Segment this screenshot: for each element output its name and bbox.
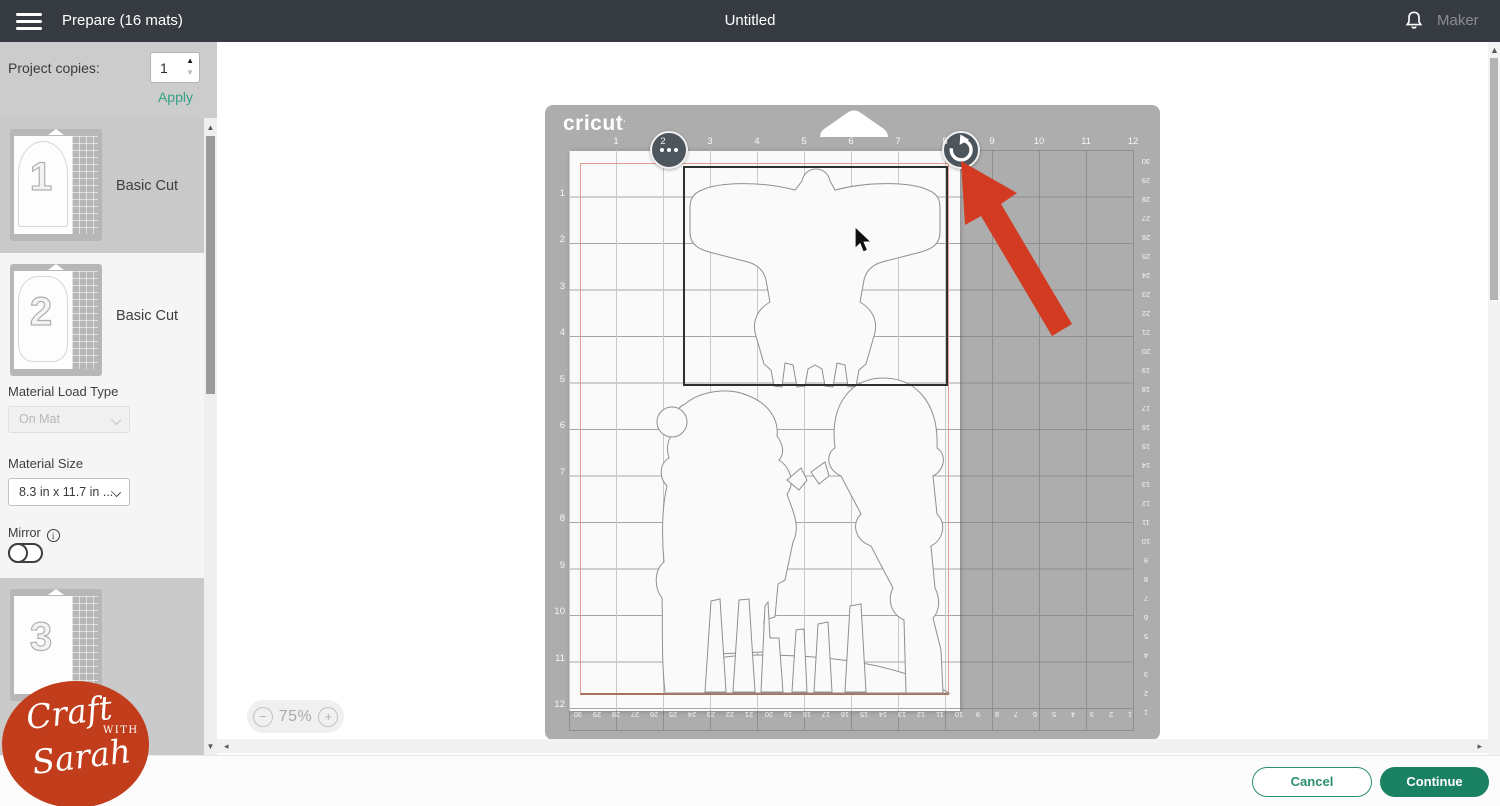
ruler-number: 25: [666, 710, 680, 719]
mat-tab-icon: [48, 129, 64, 135]
material-size-select[interactable]: 8.3 in x 11.7 in ...: [8, 478, 130, 506]
mat-cut-type: Basic Cut: [116, 308, 178, 324]
ruler-number: 16: [838, 710, 852, 719]
ruler-number: 15: [1139, 442, 1153, 451]
ruler-number: 8: [547, 513, 565, 524]
scrollbar-thumb[interactable]: [206, 136, 215, 394]
ruler-number: 10: [1034, 136, 1045, 147]
ruler-number: 26: [1139, 233, 1153, 242]
ruler-number: 11: [933, 710, 947, 719]
scrollbar-thumb[interactable]: [1490, 58, 1498, 300]
page-title: Prepare (16 mats): [62, 0, 183, 42]
sidebar: Project copies: 1 ▲ ▼ Apply 1 Basic Cut: [0, 42, 217, 755]
mat-top-tab: [820, 110, 888, 137]
ruler-number: 4: [754, 136, 759, 147]
zoom-out-icon[interactable]: −: [253, 707, 273, 727]
ruler-number: 11: [1081, 136, 1091, 147]
ruler-number: 20: [762, 710, 776, 719]
continue-button[interactable]: Continue: [1380, 767, 1489, 797]
zoom-level: 75%: [279, 708, 313, 726]
ruler-number: 21: [1139, 328, 1153, 337]
ruler-number: 17: [819, 710, 833, 719]
ruler-number: 12: [1139, 499, 1153, 508]
scroll-up-icon[interactable]: ▲: [1490, 45, 1499, 55]
ruler-number: 6: [848, 136, 853, 147]
ruler-number: 13: [1139, 480, 1153, 489]
ruler-number: 18: [800, 710, 814, 719]
ruler-number: 12: [547, 699, 565, 710]
ruler-number: 10: [1139, 537, 1153, 546]
ruler-number: 23: [704, 710, 718, 719]
ruler-number: 4: [1139, 651, 1153, 660]
ruler-number: 17: [1139, 404, 1153, 413]
ruler-number: 8: [990, 710, 1004, 719]
copies-value[interactable]: 1: [160, 60, 168, 76]
copies-decrement-icon[interactable]: ▼: [186, 68, 194, 77]
menu-icon[interactable]: [16, 13, 42, 30]
ruler-number: 2: [547, 234, 565, 245]
design-holly: [811, 462, 829, 484]
ruler-number: 5: [1139, 632, 1153, 641]
mat-number: 1: [10, 155, 72, 200]
ruler-number: 18: [1139, 385, 1153, 394]
ruler-number: 4: [1066, 710, 1080, 719]
ruler-number: 8: [1139, 575, 1153, 584]
material-size-label: Material Size: [8, 456, 83, 471]
ruler-number: 13: [895, 710, 909, 719]
ruler-number: 3: [547, 281, 565, 292]
ruler-number: 3: [1085, 710, 1099, 719]
ruler-number: 6: [1028, 710, 1042, 719]
ruler-number: 4: [547, 327, 565, 338]
ruler-number: 2: [1139, 689, 1153, 698]
mat-thumbnail: 1: [10, 129, 102, 241]
mat-number: 3: [10, 615, 72, 660]
scroll-up-icon[interactable]: ▲: [204, 123, 217, 132]
ruler-number: 6: [1139, 613, 1153, 622]
project-copies-label: Project copies:: [8, 60, 100, 76]
apply-link[interactable]: Apply: [158, 89, 193, 105]
ruler-number: 9: [971, 710, 985, 719]
ruler-number: 2: [660, 136, 665, 147]
info-icon[interactable]: i: [47, 529, 60, 542]
ruler-number: 12: [914, 710, 928, 719]
ruler-number: 7: [1139, 594, 1153, 603]
ruler-number: 30: [1139, 157, 1153, 166]
cutting-mat: cricut.: [545, 105, 1160, 740]
ruler-number: 24: [685, 710, 699, 719]
copies-input[interactable]: 1 ▲ ▼: [150, 52, 200, 83]
top-bar: Prepare (16 mats) Untitled Maker: [0, 0, 1500, 42]
ruler-number: 29: [1139, 176, 1153, 185]
rotate-icon: [944, 133, 978, 167]
design-gnome: [829, 378, 944, 693]
design-candle: [814, 622, 832, 692]
ruler-number: 1: [1123, 710, 1137, 719]
cancel-button[interactable]: Cancel: [1252, 767, 1372, 797]
sidebar-scrollbar[interactable]: ▲ ▼: [204, 118, 217, 755]
ruler-number: 11: [547, 653, 565, 664]
mat-list-item-1[interactable]: 1 Basic Cut: [0, 118, 204, 253]
craft-with-sarah-watermark: Craft with Sarah: [2, 681, 149, 806]
zoom-in-icon[interactable]: +: [318, 707, 338, 727]
mat-cut-type: Basic Cut: [116, 178, 178, 194]
mat-number: 2: [10, 290, 72, 335]
ruler-number: 9: [547, 560, 565, 571]
ruler-number: 26: [647, 710, 661, 719]
mirror-toggle[interactable]: [8, 543, 43, 563]
toggle-knob: [8, 543, 28, 563]
ruler-number: 22: [1139, 309, 1153, 318]
scroll-left-icon[interactable]: ◂: [224, 741, 229, 752]
document-title: Untitled: [0, 0, 1500, 42]
ruler-number: 19: [781, 710, 795, 719]
material-load-type-select[interactable]: On Mat: [8, 406, 130, 433]
ruler-number: 5: [547, 374, 565, 385]
chevron-down-icon: [111, 415, 121, 425]
ruler-number: 3: [707, 136, 712, 147]
copies-increment-icon[interactable]: ▲: [186, 56, 194, 65]
watermark-word: Craft: [24, 688, 114, 737]
rotate-button[interactable]: [942, 131, 980, 169]
ruler-number: 10: [952, 710, 966, 719]
ruler-number: 1: [613, 136, 618, 147]
app-root: Prepare (16 mats) Untitled Maker Project…: [0, 0, 1500, 806]
material-load-type-label: Material Load Type: [8, 384, 118, 399]
ruler-number: 7: [547, 467, 565, 478]
ruler-number: 20: [1139, 347, 1153, 356]
cricut-logo: cricut.: [563, 112, 626, 136]
ruler-number: 8: [942, 136, 947, 147]
project-copies-panel: Project copies: 1 ▲ ▼ Apply: [0, 42, 217, 118]
ruler-number: 14: [1139, 461, 1153, 470]
ruler-number: 2: [1104, 710, 1118, 719]
ruler-number: 1: [547, 188, 565, 199]
ruler-number: 30: [571, 710, 585, 719]
ruler-number: 22: [723, 710, 737, 719]
ruler-number: 12: [1128, 136, 1139, 147]
ruler-number: 27: [628, 710, 642, 719]
ruler-number: 5: [801, 136, 806, 147]
ruler-number: 15: [857, 710, 871, 719]
design-candle: [792, 629, 807, 692]
ruler-number: 29: [590, 710, 604, 719]
mat-tab-icon: [48, 264, 64, 270]
ruler-number: 5: [1047, 710, 1061, 719]
ruler-number: 10: [547, 606, 565, 617]
scroll-down-icon[interactable]: ▼: [204, 742, 217, 751]
footer-bar: Cancel Continue: [0, 755, 1500, 806]
canvas-vertical-scrollbar[interactable]: ▲: [1488, 42, 1500, 755]
material-load-type-value: On Mat: [19, 412, 60, 426]
canvas-horizontal-scrollbar[interactable]: ◂ ▸: [217, 739, 1488, 753]
design-pompom: [657, 407, 687, 437]
ruler-number: 23: [1139, 290, 1153, 299]
ruler-number: 6: [547, 420, 565, 431]
mat-settings: Material Load Type On Mat Material Size …: [0, 378, 204, 578]
mat-list-item-2[interactable]: 2 Basic Cut: [0, 253, 204, 378]
ruler-number: 7: [895, 136, 900, 147]
ruler-number: 28: [1139, 195, 1153, 204]
ruler-number: 27: [1139, 214, 1153, 223]
ruler-number: 9: [1139, 556, 1153, 565]
mat-thumbnail: 2: [10, 264, 102, 376]
mirror-label: Mirror: [8, 526, 41, 540]
ruler-number: 16: [1139, 423, 1153, 432]
notification-bell-icon[interactable]: [1402, 9, 1426, 33]
ruler-number: 21: [742, 710, 756, 719]
ruler-number: 7: [1009, 710, 1023, 719]
material-size-value: 8.3 in x 11.7 in ...: [19, 485, 113, 499]
ruler-number: 28: [609, 710, 623, 719]
ruler-number: 3: [1139, 670, 1153, 679]
ellipsis-icon: [652, 133, 686, 167]
ruler-number: 11: [1139, 518, 1153, 527]
zoom-control: − 75% +: [247, 700, 344, 733]
design-candle: [845, 604, 866, 692]
ruler-number: 24: [1139, 271, 1153, 280]
scroll-right-icon[interactable]: ▸: [1477, 741, 1482, 752]
mat-tab-icon: [48, 589, 64, 595]
ruler-number: 19: [1139, 366, 1153, 375]
ruler-number: 25: [1139, 252, 1153, 261]
ruler-number: 1: [1139, 708, 1153, 717]
more-options-button[interactable]: [650, 131, 688, 169]
watermark-word: Sarah: [30, 731, 133, 782]
machine-name[interactable]: Maker: [1437, 0, 1479, 42]
ruler-number: 9: [989, 136, 994, 147]
ruler-number: 14: [876, 710, 890, 719]
selection-bounding-box[interactable]: [683, 166, 948, 386]
